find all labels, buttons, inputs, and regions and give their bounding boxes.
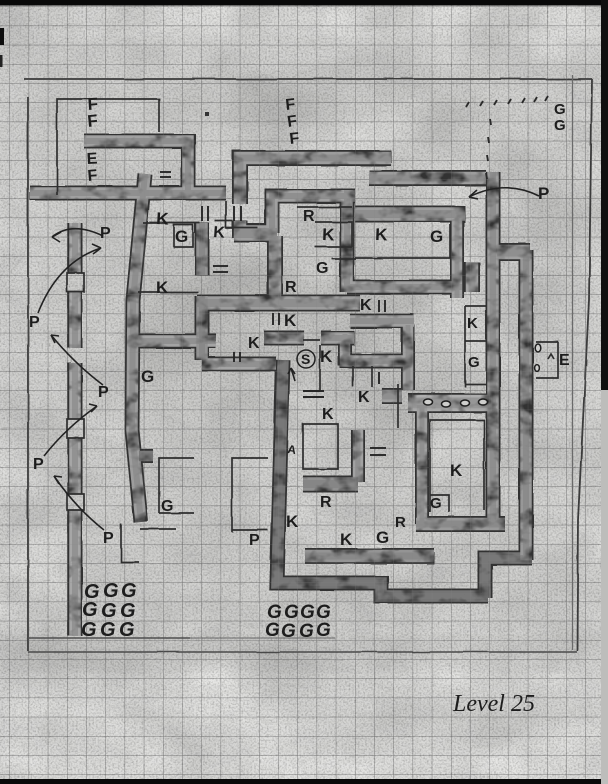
svg-text:P: P [538, 184, 549, 203]
svg-text:P: P [103, 530, 114, 547]
svg-text:G: G [103, 580, 119, 602]
svg-text:P: P [249, 532, 260, 549]
svg-text:K: K [286, 512, 299, 531]
svg-text:K: K [156, 278, 169, 297]
svg-text:P: P [100, 225, 111, 242]
svg-text:K: K [340, 530, 353, 549]
svg-text:F: F [87, 167, 98, 185]
svg-text:G: G [376, 528, 389, 547]
svg-text:G: G [119, 619, 135, 641]
svg-text:R: R [320, 494, 332, 511]
svg-text:K: K [322, 225, 336, 244]
svg-text:G: G [554, 117, 566, 134]
svg-text:G: G [81, 619, 97, 641]
svg-text:P: P [33, 456, 44, 473]
svg-text:G: G [281, 621, 296, 642]
svg-text:F: F [285, 96, 297, 114]
svg-text:S: S [301, 351, 310, 367]
svg-text:K: K [322, 406, 334, 423]
svg-text:K: K [360, 297, 372, 314]
svg-text:G: G [175, 227, 188, 246]
svg-text:E: E [86, 150, 98, 168]
svg-text:K: K [213, 224, 226, 242]
svg-text:R: R [395, 514, 406, 531]
svg-text:G: G [316, 260, 328, 277]
svg-text:K: K [284, 311, 297, 330]
svg-text:G: G [121, 580, 137, 602]
svg-text:G: G [430, 227, 443, 246]
svg-text:G: G [468, 354, 480, 371]
svg-text:K: K [248, 335, 260, 352]
svg-text:K: K [358, 389, 370, 406]
svg-text:G: G [265, 620, 280, 641]
svg-text:G: G [316, 620, 331, 641]
svg-text:K: K [320, 347, 333, 366]
svg-text:K: K [156, 209, 170, 229]
svg-text:G: G [82, 599, 98, 621]
svg-text:G: G [161, 498, 173, 515]
svg-text:Level 25: Level 25 [452, 691, 535, 717]
svg-text:G: G [299, 621, 314, 642]
svg-text:K: K [375, 225, 389, 244]
svg-text:G: G [554, 101, 566, 118]
svg-text:F: F [86, 111, 98, 131]
svg-text:P: P [98, 384, 109, 401]
svg-text:G: G [141, 367, 154, 386]
svg-text:G: G [100, 619, 116, 641]
svg-text:K: K [450, 461, 463, 480]
svg-text:G: G [430, 495, 442, 512]
svg-text:G: G [284, 602, 299, 623]
svg-text:K: K [467, 315, 478, 332]
svg-text:P: P [29, 314, 40, 331]
svg-text:G: G [300, 602, 315, 623]
svg-text:F: F [289, 130, 301, 148]
svg-text:R: R [285, 279, 297, 296]
svg-text:R: R [303, 208, 315, 225]
svg-text:E: E [559, 352, 570, 369]
